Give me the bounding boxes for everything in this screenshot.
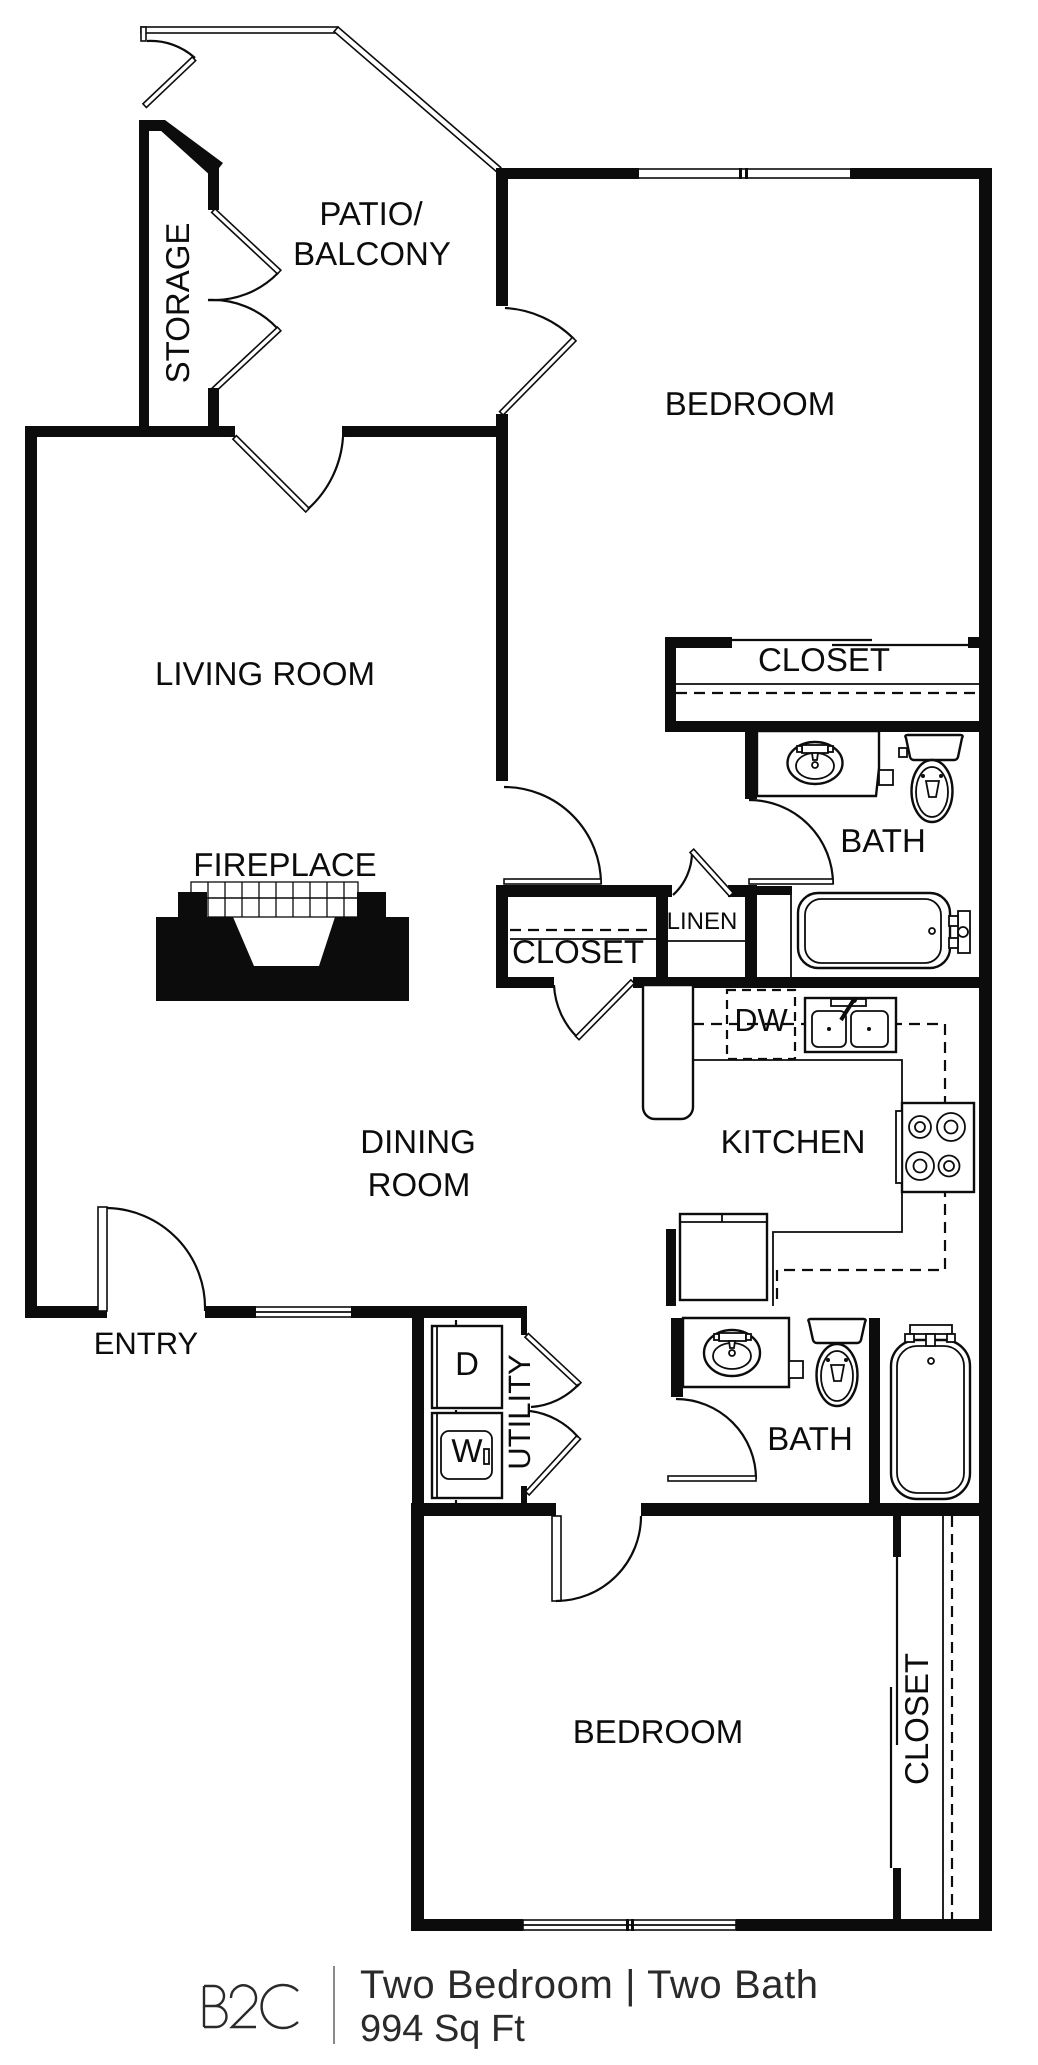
svg-text:CLOSET: CLOSET [512, 933, 644, 970]
svg-text:BEDROOM: BEDROOM [665, 385, 836, 422]
svg-text:BEDROOM: BEDROOM [573, 1713, 744, 1750]
svg-text:W: W [451, 1432, 483, 1469]
svg-text:LIVING ROOM: LIVING ROOM [155, 655, 375, 692]
svg-text:CLOSET: CLOSET [758, 641, 890, 678]
svg-text:DW: DW [734, 1002, 788, 1038]
svg-text:ROOM: ROOM [368, 1166, 471, 1203]
svg-text:BATH: BATH [840, 822, 926, 859]
svg-text:ENTRY: ENTRY [94, 1326, 199, 1361]
svg-text:Two Bedroom | Two Bath: Two Bedroom | Two Bath [360, 1963, 819, 2007]
svg-text:DINING: DINING [360, 1123, 476, 1160]
svg-text:CLOSET: CLOSET [898, 1653, 935, 1785]
svg-text:FIREPLACE: FIREPLACE [193, 846, 376, 883]
svg-text:STORAGE: STORAGE [159, 223, 196, 384]
svg-text:KITCHEN: KITCHEN [721, 1123, 866, 1160]
svg-text:BATH: BATH [767, 1420, 853, 1457]
svg-text:LINEN: LINEN [667, 908, 738, 935]
svg-text:D: D [455, 1345, 479, 1382]
svg-text:994 Sq Ft: 994 Sq Ft [360, 2008, 525, 2050]
svg-text:BALCONY: BALCONY [293, 235, 451, 272]
svg-text:PATIO/: PATIO/ [319, 195, 423, 232]
